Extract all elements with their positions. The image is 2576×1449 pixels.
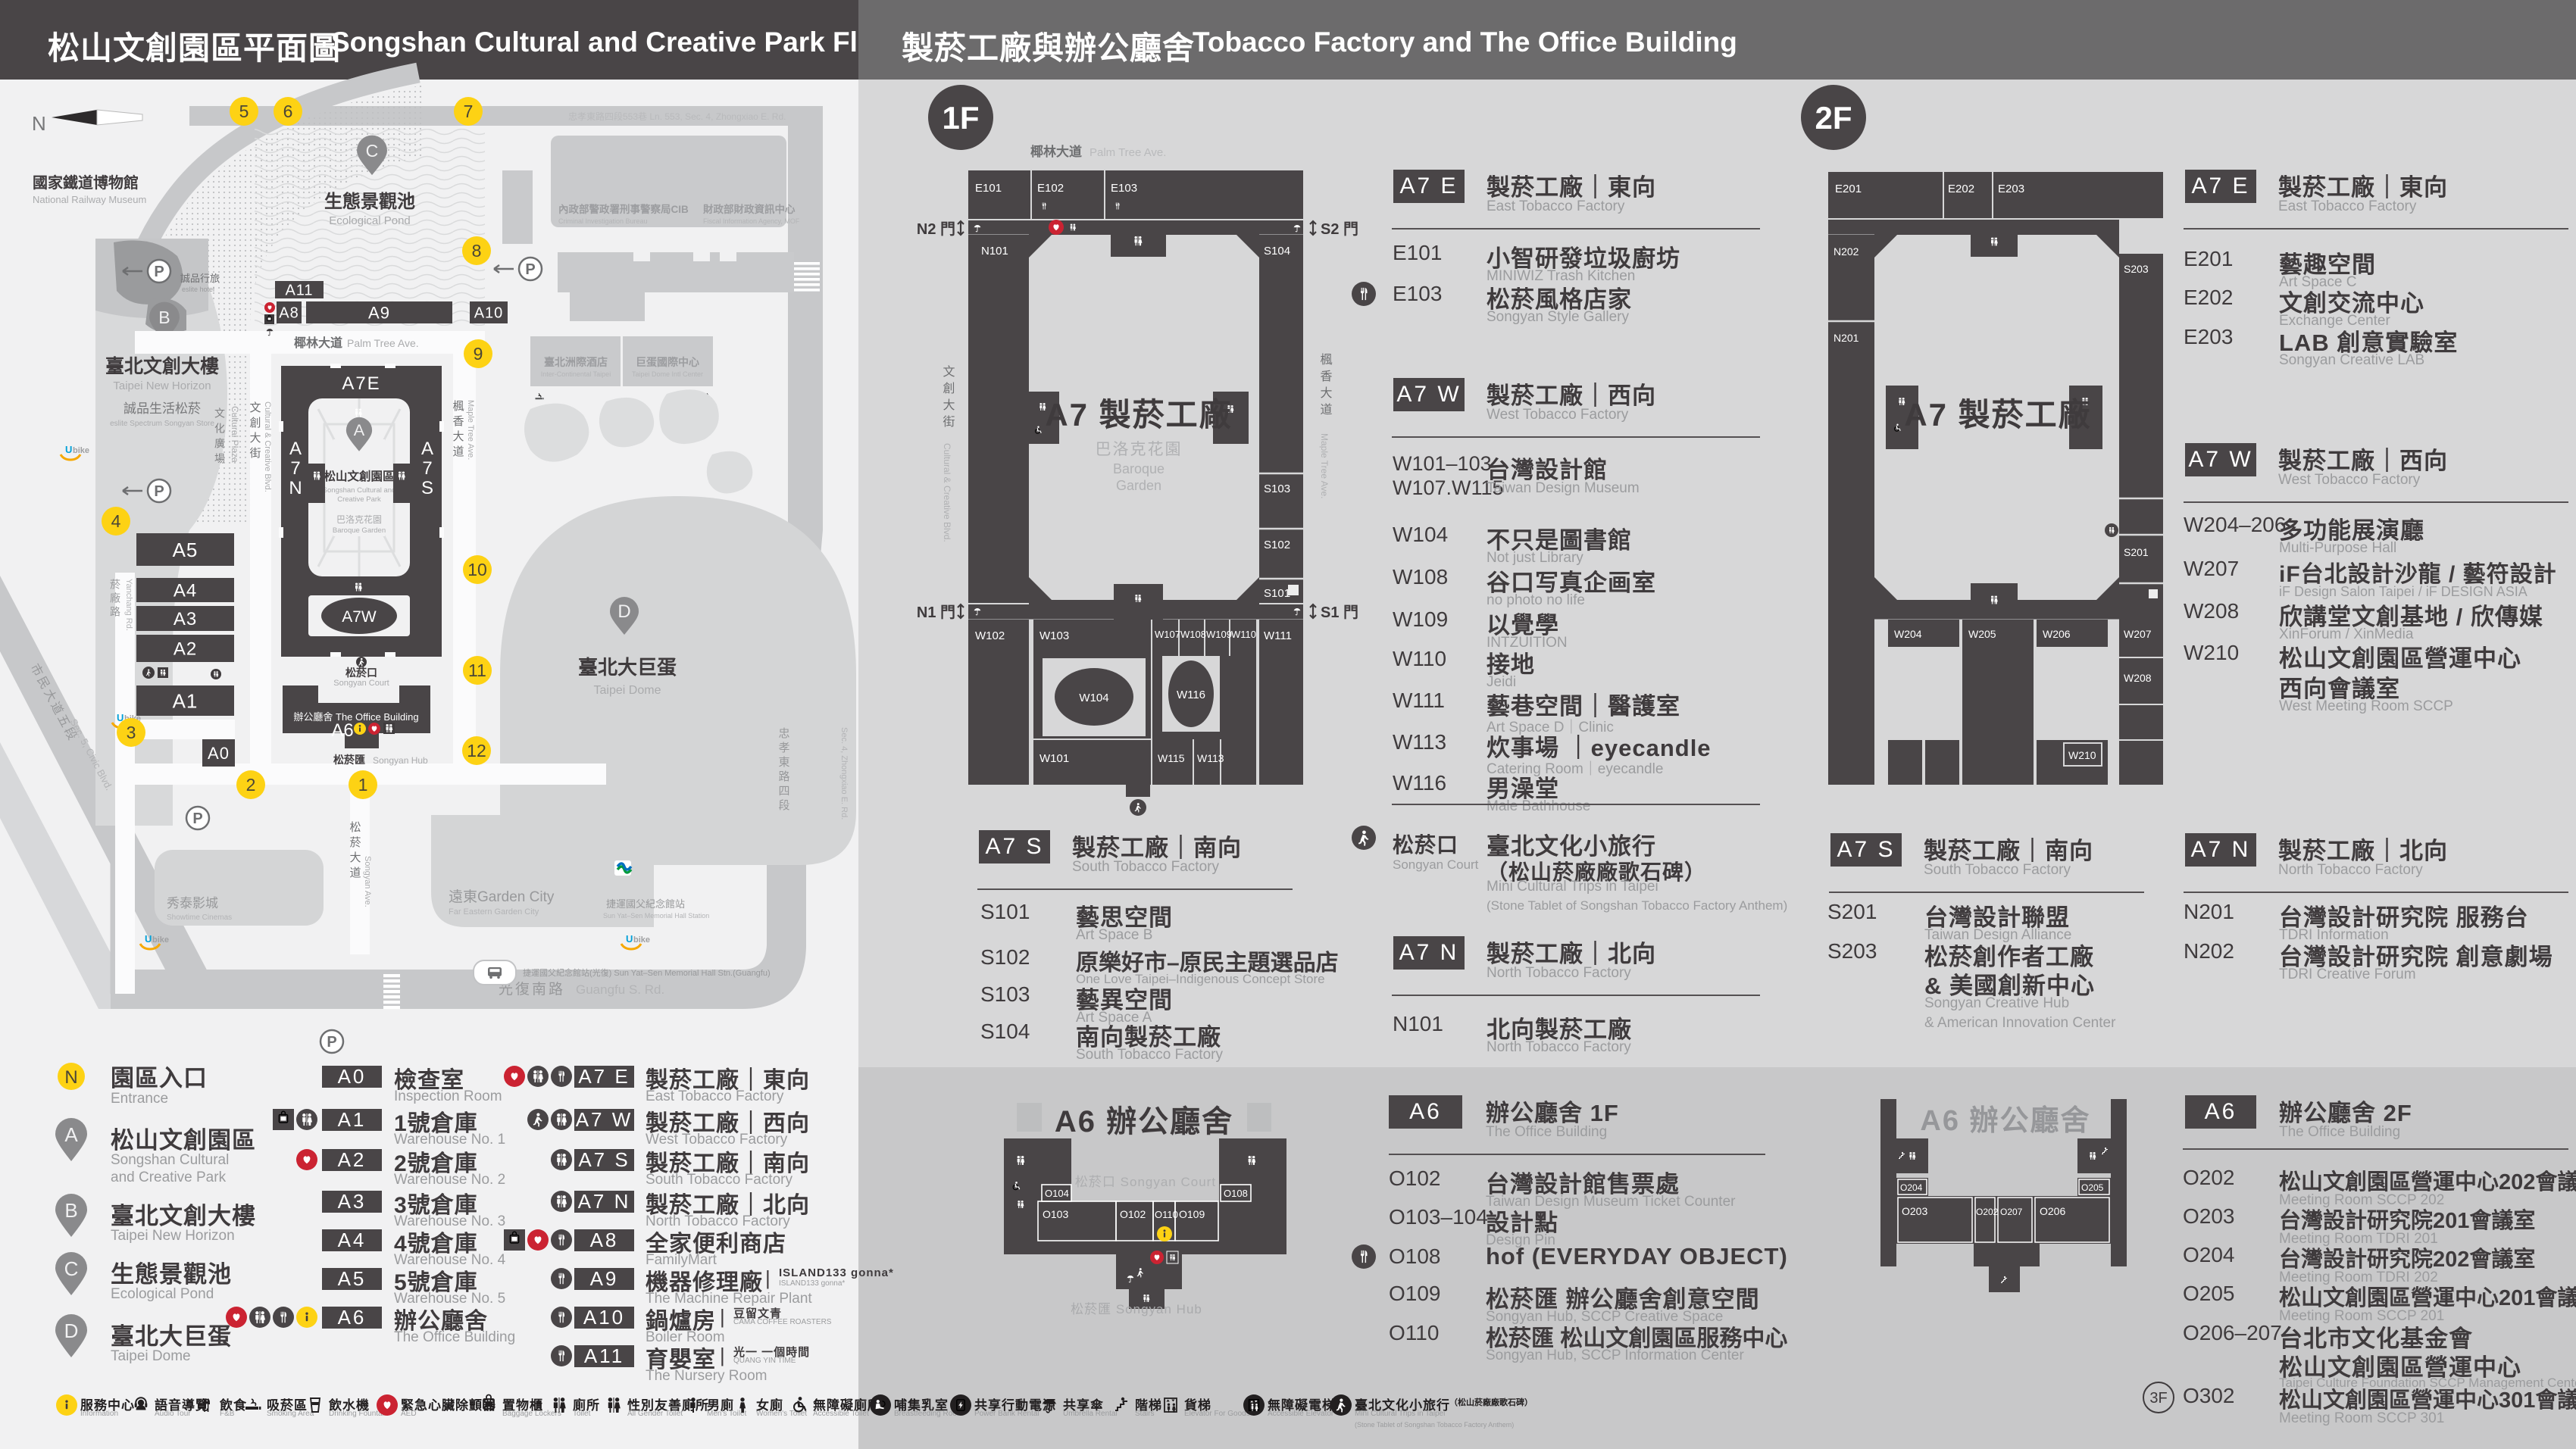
svg-text:N: N	[64, 1067, 77, 1088]
svg-text:Cultural & Creative Blvd.: Cultural & Creative Blvd.	[263, 401, 272, 492]
svg-text:忠孝東路四段: 忠孝東路四段	[777, 727, 790, 814]
svg-text:A6: A6	[331, 720, 353, 741]
svg-text:P: P	[154, 483, 164, 500]
svg-text:巴洛克花園: 巴洛克花園	[336, 514, 382, 525]
svg-text:7: 7	[290, 458, 300, 479]
svg-text:Inter-Continental Taipei: Inter-Continental Taipei	[541, 370, 611, 378]
svg-text:松菸大道: 松菸大道	[349, 821, 361, 882]
svg-text:臺北文創大樓: 臺北文創大樓	[105, 355, 219, 377]
svg-text:Baroque: Baroque	[1113, 461, 1165, 476]
svg-text:秀泰影城: 秀泰影城	[167, 896, 218, 910]
svg-text:N2 門: N2 門	[917, 220, 955, 238]
svg-text:12: 12	[467, 741, 486, 760]
svg-text:A10: A10	[474, 305, 504, 322]
svg-text:A7 製菸工廠: A7 製菸工廠	[1904, 397, 2091, 433]
svg-text:巨蛋國際中心: 巨蛋國際中心	[636, 356, 699, 368]
svg-text:3: 3	[127, 723, 136, 742]
svg-text:遠東Garden City: 遠東Garden City	[449, 888, 555, 905]
svg-text:9: 9	[474, 344, 483, 364]
svg-text:A2: A2	[174, 639, 197, 660]
svg-text:S104: S104	[1264, 245, 1290, 258]
svg-text:P: P	[525, 261, 535, 278]
svg-text:文創大街: 文創大街	[249, 401, 261, 462]
svg-text:6: 6	[283, 101, 293, 121]
svg-text:W116: W116	[1177, 689, 1205, 701]
svg-text:O202: O202	[1976, 1207, 1999, 1217]
svg-text:W208: W208	[2124, 672, 2152, 684]
svg-text:O206: O206	[2040, 1205, 2065, 1217]
svg-text:Fiscal Information Agency, MOF: Fiscal Information Agency, MOF	[703, 217, 800, 225]
svg-text:S: S	[421, 478, 433, 498]
svg-text:A11: A11	[285, 283, 313, 299]
svg-text:W103: W103	[1039, 629, 1069, 642]
svg-text:A8: A8	[279, 305, 299, 322]
svg-text:W101: W101	[1039, 752, 1069, 765]
svg-text:E102: E102	[1037, 182, 1064, 195]
svg-text:P: P	[154, 264, 164, 280]
svg-text:7: 7	[422, 458, 432, 479]
svg-text:U: U	[626, 933, 633, 945]
svg-text:Yanchang Rd.: Yanchang Rd.	[124, 579, 133, 631]
svg-text:臺北大巨蛋: 臺北大巨蛋	[578, 656, 677, 679]
svg-text:A: A	[421, 439, 433, 459]
svg-text:N: N	[32, 112, 46, 135]
svg-text:C: C	[366, 141, 379, 161]
svg-text:楓香大道: 楓香大道	[1318, 353, 1333, 420]
svg-text:S203: S203	[2124, 263, 2149, 275]
svg-text:文創大街: 文創大街	[941, 365, 955, 432]
svg-text:A4: A4	[174, 581, 197, 601]
svg-text:S2 門: S2 門	[1321, 220, 1358, 238]
svg-text:誠品行旅: 誠品行旅	[180, 273, 220, 284]
svg-text:8: 8	[472, 241, 482, 261]
svg-text:椰林大道: 椰林大道	[1030, 144, 1082, 159]
svg-text:1: 1	[358, 775, 368, 795]
svg-text:A7E: A7E	[342, 373, 380, 394]
svg-text:10: 10	[467, 560, 487, 579]
svg-text:生態景觀池: 生態景觀池	[324, 191, 415, 212]
svg-text:Maple Tree Ave.: Maple Tree Ave.	[466, 400, 475, 460]
svg-text:松菸匯 Songyan Hub: 松菸匯 Songyan Hub	[1071, 1302, 1202, 1316]
svg-text:Sec. 4, Zhongxiao E. Rd.: Sec. 4, Zhongxiao E. Rd.	[839, 727, 849, 820]
svg-text:A7 製菸工廠: A7 製菸工廠	[1045, 397, 1232, 433]
svg-text:W107: W107	[1155, 629, 1180, 640]
svg-text:1F: 1F	[942, 100, 979, 136]
svg-text:松菸口: 松菸口	[345, 667, 377, 679]
svg-text:A: A	[289, 439, 302, 459]
svg-text:Taipei Dome Intl Center: Taipei Dome Intl Center	[632, 370, 703, 378]
svg-text:O110: O110	[1155, 1209, 1178, 1220]
svg-text:Taipei New Horizon: Taipei New Horizon	[113, 379, 211, 392]
svg-text:W207: W207	[2124, 628, 2152, 640]
svg-text:W113: W113	[1197, 752, 1224, 764]
svg-text:Showtime Cinemas: Showtime Cinemas	[167, 913, 232, 922]
svg-text:Palm Tree Ave.: Palm Tree Ave.	[1089, 146, 1166, 159]
svg-text:W210: W210	[2068, 749, 2096, 761]
svg-text:A7W: A7W	[342, 608, 377, 626]
svg-text:文化廣場: 文化廣場	[214, 408, 226, 468]
svg-text:N: N	[289, 478, 302, 498]
svg-text:A3: A3	[174, 609, 197, 629]
svg-text:W104: W104	[1079, 692, 1108, 704]
svg-text:O204: O204	[1900, 1182, 1923, 1193]
svg-text:A5: A5	[173, 539, 199, 561]
svg-text:O103: O103	[1043, 1208, 1068, 1220]
svg-text:7: 7	[464, 101, 474, 121]
svg-text:Songshan Cultural and: Songshan Cultural and	[323, 486, 396, 495]
svg-text:A1: A1	[173, 689, 199, 712]
svg-text:Criminal Investigation Bureau: Criminal Investigation Bureau	[558, 217, 648, 225]
svg-text:O205: O205	[2081, 1182, 2104, 1193]
svg-text:巴洛克花園: 巴洛克花園	[1096, 441, 1183, 458]
svg-text:P: P	[192, 810, 202, 827]
svg-text:A9: A9	[368, 303, 390, 322]
svg-text:U: U	[145, 933, 152, 945]
svg-text:捷運國父紀念館站(光復) Sun Yat–Sen Memo: 捷運國父紀念館站(光復) Sun Yat–Sen Memorial Hall S…	[523, 967, 771, 978]
svg-text:Cultural Plaza: Cultural Plaza	[230, 406, 240, 463]
svg-text:D: D	[64, 1319, 79, 1342]
svg-text:Ecological Pond: Ecological Pond	[329, 214, 411, 227]
svg-text:A: A	[64, 1123, 78, 1146]
svg-text:A0: A0	[208, 744, 230, 763]
svg-text:E203: E203	[1998, 183, 2024, 195]
svg-text:S201: S201	[2124, 546, 2149, 558]
svg-text:B: B	[158, 308, 170, 327]
svg-text:E201: E201	[1835, 183, 1862, 195]
svg-text:W204: W204	[1894, 628, 1922, 640]
svg-text:E202: E202	[1948, 183, 1974, 195]
svg-text:W206: W206	[2043, 628, 2071, 640]
svg-text:Maple Tree Ave.: Maple Tree Ave.	[1319, 433, 1330, 499]
svg-text:財政部財政資訊中心: 財政部財政資訊中心	[702, 203, 796, 215]
svg-text:Songyan Ave.: Songyan Ave.	[363, 856, 372, 907]
svg-text:W109: W109	[1206, 629, 1232, 640]
svg-text:P: P	[327, 1034, 336, 1051]
svg-text:松菸匯: 松菸匯	[333, 754, 365, 766]
svg-text:辦公廳舍 The Office Building: 辦公廳舍 The Office Building	[293, 711, 418, 723]
svg-text:Garden: Garden	[1116, 478, 1161, 493]
svg-text:松山文創園區: 松山文創園區	[324, 469, 394, 483]
svg-text:Palm Tree Ave.: Palm Tree Ave.	[347, 337, 419, 349]
svg-text:忠孝東路四段553巷 Ln. 553, Sec. 4, Z: 忠孝東路四段553巷 Ln. 553, Sec. 4, Zhongxiao E.…	[568, 111, 786, 122]
svg-text:O108: O108	[1224, 1188, 1248, 1199]
svg-text:E103: E103	[1111, 182, 1137, 195]
svg-text:A6 辦公廳舍: A6 辦公廳舍	[1920, 1105, 2090, 1137]
svg-text:Songyan Hub: Songyan Hub	[373, 755, 428, 766]
svg-text:S103: S103	[1264, 482, 1290, 495]
svg-text:Guangfu S. Rd.: Guangfu S. Rd.	[576, 982, 664, 997]
svg-text:Baroque Garden: Baroque Garden	[333, 526, 386, 535]
svg-text:E101: E101	[975, 182, 1002, 195]
svg-text:11: 11	[468, 660, 486, 680]
svg-text:N1 門: N1 門	[917, 604, 955, 621]
svg-text:3F: 3F	[2149, 1390, 2167, 1407]
svg-text:Sun Yat–Sen Memorial Hall Stat: Sun Yat–Sen Memorial Hall Station	[603, 912, 709, 920]
svg-text:bike: bike	[152, 935, 169, 945]
svg-text:O207: O207	[2000, 1207, 2023, 1217]
svg-text:U: U	[65, 444, 72, 455]
svg-text:O109: O109	[1179, 1208, 1205, 1220]
svg-text:2F: 2F	[1815, 100, 1852, 136]
svg-text:內政部警政署刑事警察局CIB: 內政部警政署刑事警察局CIB	[558, 203, 689, 215]
svg-text:Cultural & Creative Blvd.: Cultural & Creative Blvd.	[942, 443, 952, 542]
svg-text:bike: bike	[633, 935, 650, 945]
svg-text:W115: W115	[1158, 752, 1185, 764]
svg-text:W205: W205	[1968, 628, 1996, 640]
svg-text:N202: N202	[1834, 245, 1859, 258]
svg-text:C: C	[64, 1257, 79, 1280]
svg-text:楓香大道: 楓香大道	[452, 400, 464, 461]
svg-text:O203: O203	[1902, 1205, 1927, 1217]
svg-text:W111: W111	[1264, 629, 1292, 642]
svg-text:W110: W110	[1231, 629, 1256, 640]
svg-text:菸廠路: 菸廠路	[109, 579, 121, 620]
svg-text:國家鐵道博物館: 國家鐵道博物館	[33, 173, 139, 192]
svg-text:S101: S101	[1264, 587, 1290, 600]
svg-text:2: 2	[246, 775, 256, 795]
svg-text:5: 5	[239, 101, 249, 121]
svg-text:O102: O102	[1120, 1208, 1146, 1220]
svg-text:Far Eastern Garden City: Far Eastern Garden City	[449, 907, 539, 917]
svg-text:W102: W102	[975, 629, 1005, 642]
svg-text:N201: N201	[1834, 332, 1859, 344]
svg-text:W108: W108	[1180, 629, 1206, 640]
svg-text:誠品生活松菸: 誠品生活松菸	[123, 401, 201, 416]
svg-text:National Railway Museum: National Railway Museum	[33, 194, 146, 205]
svg-text:Creative Park: Creative Park	[337, 495, 381, 504]
svg-text:A6 辦公廳舍: A6 辦公廳舍	[1055, 1104, 1233, 1138]
svg-text:N101: N101	[981, 245, 1008, 258]
svg-text:松菸口 Songyan Court: 松菸口 Songyan Court	[1075, 1175, 1216, 1189]
svg-text:eslite Spectrum Songyan Store: eslite Spectrum Songyan Store	[110, 420, 214, 428]
svg-text:D: D	[617, 601, 630, 622]
svg-text:A: A	[354, 420, 365, 439]
svg-text:Songyan Court: Songyan Court	[333, 679, 389, 688]
svg-text:eslite hotel: eslite hotel	[182, 286, 214, 293]
svg-text:Taipei Dome: Taipei Dome	[594, 684, 661, 697]
svg-text:B: B	[64, 1199, 77, 1222]
svg-text:捷運國父紀念館站: 捷運國父紀念館站	[606, 898, 685, 910]
svg-text:椰林大道: 椰林大道	[294, 336, 342, 350]
svg-text:O104: O104	[1045, 1188, 1069, 1199]
svg-text:bike: bike	[73, 446, 89, 455]
svg-text:臺北洲際酒店: 臺北洲際酒店	[544, 356, 608, 368]
svg-text:S1 門: S1 門	[1321, 604, 1358, 621]
svg-text:S102: S102	[1264, 539, 1290, 551]
svg-text:4: 4	[111, 511, 121, 531]
